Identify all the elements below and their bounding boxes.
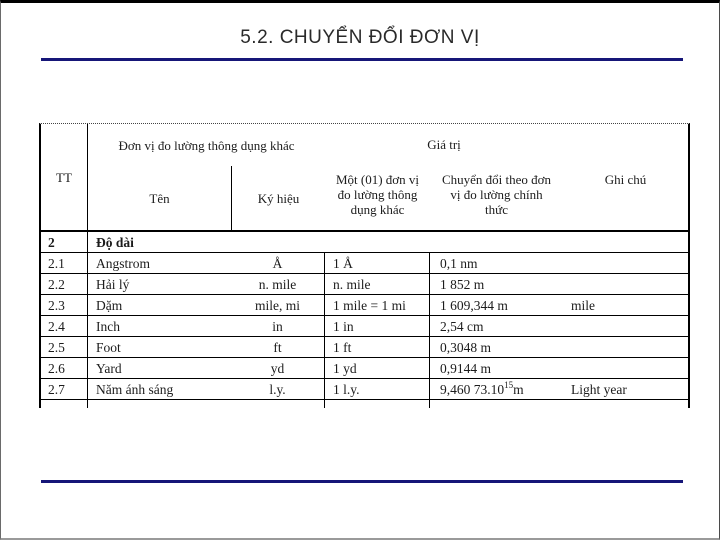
cell-one-unit: 1 mile = 1 mi [325, 295, 430, 315]
cell-name: Dặm [88, 295, 231, 315]
header-cell-symbol: Ký hiệu [231, 166, 325, 230]
cell-notes [563, 274, 688, 294]
cell-tt: 2.2 [41, 274, 88, 294]
title-divider [41, 58, 683, 61]
cell-tt: 2.5 [41, 337, 88, 357]
page-title: 5.2. CHUYỂN ĐỔI ĐƠN VỊ [1, 27, 719, 49]
cell-notes [563, 316, 688, 336]
table-row: 2.5 Foot ft 1 ft 0,3048 m [41, 337, 688, 358]
cell-tt: 2.6 [41, 358, 88, 378]
cell-one-unit: n. mile [325, 274, 430, 294]
cell-symbol: yd [231, 358, 325, 378]
header-cell-conversion: Chuyển đổi theo đơn vị đo lường chính th… [430, 164, 563, 217]
cell-conversion: 9,460 73.1015 m [430, 379, 563, 399]
cell-conversion: 0,1 nm [430, 253, 563, 273]
cell-symbol: in [231, 316, 325, 336]
header-group-units: Đơn vị đo lường thông dụng khác Tên Ký h… [88, 124, 325, 230]
header-cell-one-unit: Một (01) đơn vị đo lường thông dụng khác [325, 164, 430, 217]
table-row: 2.2 Hải lý n. mile n. mile 1 852 m [41, 274, 688, 295]
cell-one-unit: 1 Å [325, 253, 430, 273]
cell-symbol: n. mile [231, 274, 325, 294]
table-row: 2.1 Angstrom Å 1 Å 0,1 nm [41, 253, 688, 274]
cell-conversion: 1 852 m [430, 274, 563, 294]
slide: 5.2. CHUYỂN ĐỔI ĐƠN VỊ TT Đơn vị đo lườn… [0, 0, 720, 540]
cell-one-unit: 1 l.y. [325, 379, 430, 399]
cell-notes: Light year [563, 379, 688, 399]
table-row: 2.3 Dặm mile, mi 1 mile = 1 mi 1 609,344… [41, 295, 688, 316]
header-cell-tt: TT [41, 124, 88, 230]
cell-notes [563, 358, 688, 378]
cell-one-unit: 1 ft [325, 337, 430, 357]
header-cell-notes: Ghi chú [563, 124, 688, 230]
table-cutoff-row [41, 400, 688, 408]
header-value-group-label: Giá trị [325, 124, 563, 164]
header-cell-name: Tên [88, 166, 231, 230]
bottom-divider [41, 480, 683, 483]
cell-name: Foot [88, 337, 231, 357]
cell-symbol: l.y. [231, 379, 325, 399]
cell-name: Angstrom [88, 253, 231, 273]
cell-symbol: mile, mi [231, 295, 325, 315]
cell-one-unit: 1 in [325, 316, 430, 336]
cell-conversion: 1 609,344 m [430, 295, 563, 315]
conversion-exponent: 15 [504, 378, 513, 393]
header-group-value: Giá trị Một (01) đơn vị đo lường thông d… [325, 124, 563, 230]
cell-tt: 2.1 [41, 253, 88, 273]
cell-conversion: 2,54 cm [430, 316, 563, 336]
cell-symbol: ft [231, 337, 325, 357]
cell-name: Năm ánh sáng [88, 379, 231, 399]
conversion-value: 9,460 73.10 [440, 382, 504, 397]
cell-tt: 2 [41, 232, 88, 252]
table-row: 2.4 Inch in 1 in 2,54 cm [41, 316, 688, 337]
conversion-table: TT Đơn vị đo lường thông dụng khác Tên K… [39, 123, 690, 408]
cell-notes [563, 253, 688, 273]
conversion-unit: m [513, 382, 524, 397]
header-units-group-label: Đơn vị đo lường thông dụng khác [88, 124, 325, 166]
cell-tt: 2.7 [41, 379, 88, 399]
cell-tt: 2.3 [41, 295, 88, 315]
cell-symbol: Å [231, 253, 325, 273]
section-row: 2 Độ dài [41, 232, 688, 253]
cell-notes [563, 337, 688, 357]
cell-conversion: 0,3048 m [430, 337, 563, 357]
cell-name: Inch [88, 316, 231, 336]
cell-one-unit: 1 yd [325, 358, 430, 378]
cell-conversion: 0,9144 m [430, 358, 563, 378]
cell-notes: mile [563, 295, 688, 315]
cell-name: Yard [88, 358, 231, 378]
section-label: Độ dài [88, 232, 688, 252]
cell-tt: 2.4 [41, 316, 88, 336]
table-header: TT Đơn vị đo lường thông dụng khác Tên K… [41, 124, 688, 232]
table-row: 2.6 Yard yd 1 yd 0,9144 m [41, 358, 688, 379]
cell-name: Hải lý [88, 274, 231, 294]
table-row: 2.7 Năm ánh sáng l.y. 1 l.y. 9,460 73.10… [41, 379, 688, 400]
